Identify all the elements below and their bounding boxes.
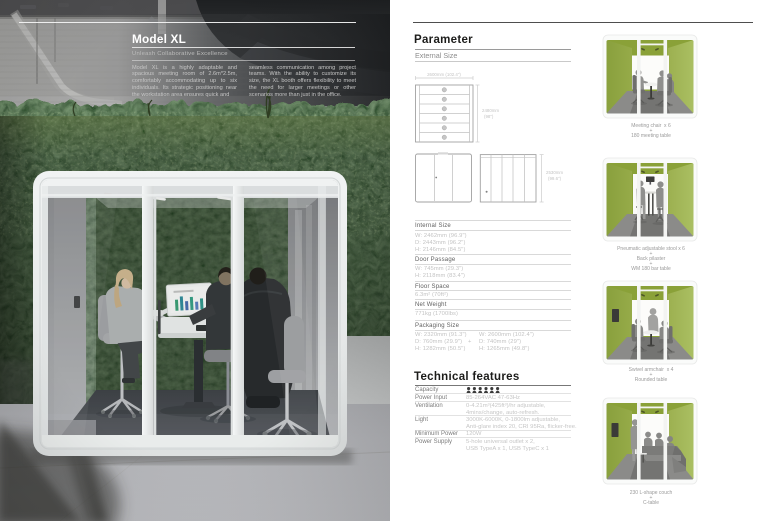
svg-text:2600mm (102.4"): 2600mm (102.4") <box>427 72 461 77</box>
svg-text:2480mm: 2480mm <box>482 108 499 113</box>
svg-text:(99.6"): (99.6") <box>548 176 562 181</box>
svg-text:2530mm: 2530mm <box>546 170 563 175</box>
svg-text:(98"): (98") <box>484 114 494 119</box>
